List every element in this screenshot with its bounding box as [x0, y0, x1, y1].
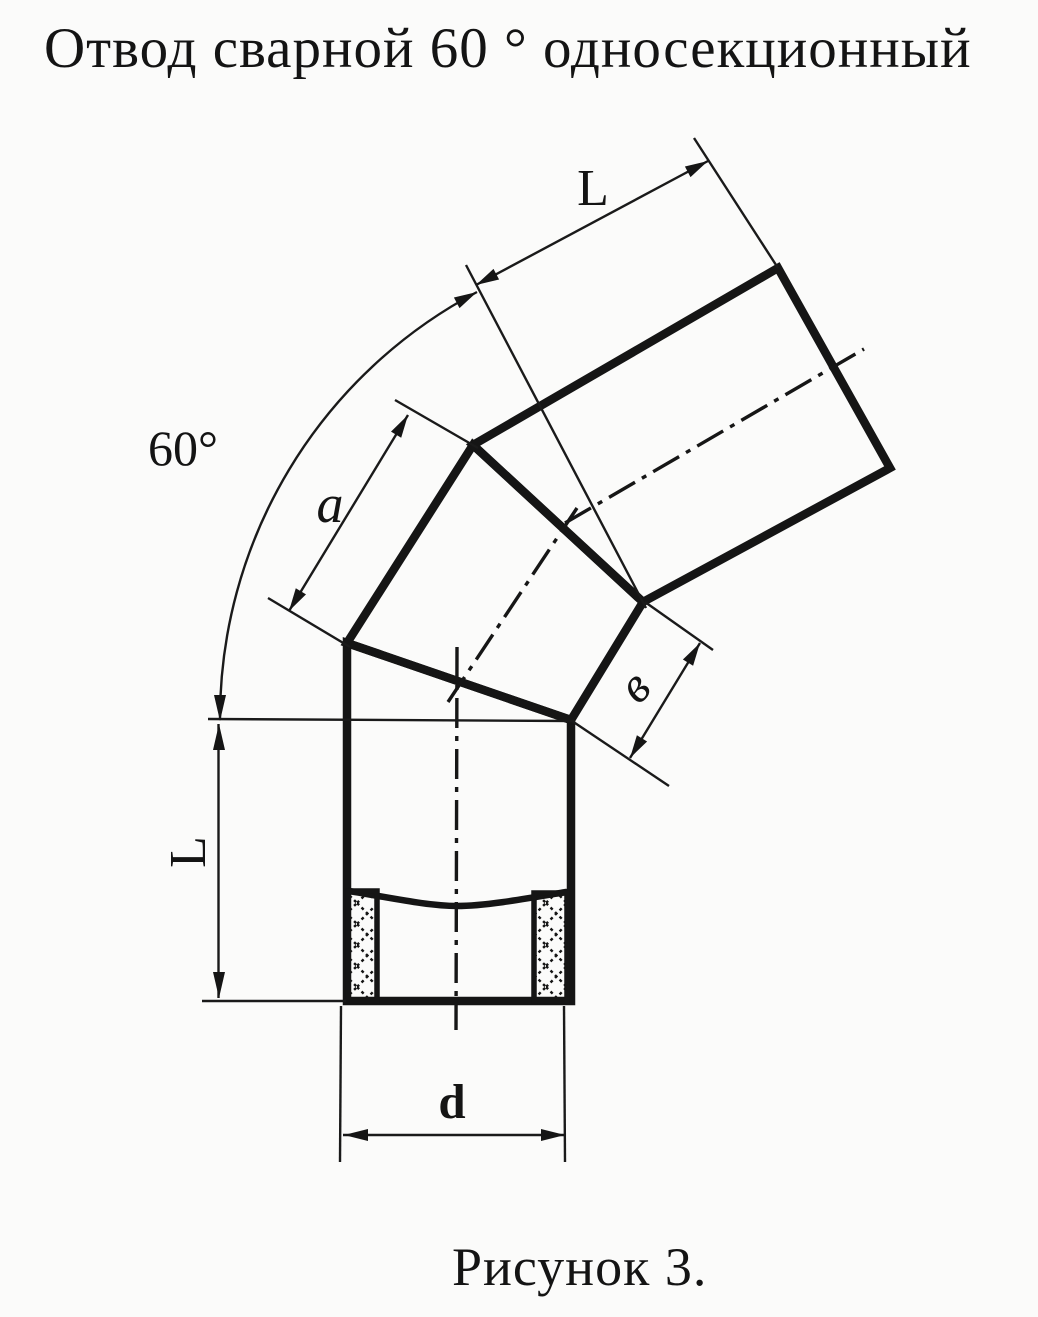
arrow-lower-L-top — [213, 724, 225, 750]
ext-line-a-top — [395, 400, 478, 448]
scanned-drawing-page: Отвод сварной 60 ° односекционный — [0, 0, 1038, 1317]
label-section-width-b: в — [606, 658, 661, 713]
label-section-side-a: a — [317, 474, 344, 534]
centerline-middle-section — [448, 508, 577, 702]
dimension-arrowheads — [213, 161, 708, 1141]
ext-line-b-top — [645, 602, 713, 650]
arrow-d-right — [541, 1129, 565, 1141]
arrow-a-top — [391, 415, 408, 438]
arrow-b-top — [683, 643, 700, 666]
pipe-wall-hatch-left — [348, 891, 377, 1001]
ext-line-upper-L-right — [694, 138, 778, 268]
arrow-upper-L-right — [685, 161, 708, 177]
arrow-a-bottom — [289, 588, 306, 611]
arrow-lower-L-bottom — [213, 972, 225, 998]
elbow-diagram: L 60° a в L d — [0, 0, 1038, 1317]
middle-section-outline — [347, 445, 643, 720]
pipe-wall-hatch-right — [534, 893, 567, 1001]
label-upper-length: L — [577, 160, 609, 217]
ext-line-top-horizontal — [208, 719, 574, 721]
centerline-upper-pipe — [565, 349, 864, 523]
figure-caption: Рисунок 3. — [452, 1236, 707, 1298]
centerlines — [448, 349, 864, 1030]
pipe-body — [347, 268, 890, 1001]
ext-line-a-bottom — [268, 598, 350, 647]
arrow-arc-bottom — [214, 695, 226, 721]
ext-line-d-left — [340, 1006, 341, 1162]
label-diameter: d — [438, 1074, 465, 1129]
arrow-upper-L-left — [476, 269, 499, 285]
centerline-lower-pipe — [456, 647, 457, 1030]
upper-pipe-outline — [473, 268, 890, 602]
label-lower-length: L — [160, 836, 217, 868]
arrow-d-left — [344, 1129, 368, 1141]
ext-line-d-right — [564, 1006, 565, 1162]
arrow-b-bottom — [630, 735, 647, 758]
arrow-arc-top — [454, 292, 477, 308]
ext-line-b-bottom — [572, 721, 669, 786]
dimension-lines — [202, 138, 778, 1162]
label-bend-angle: 60° — [148, 420, 218, 476]
